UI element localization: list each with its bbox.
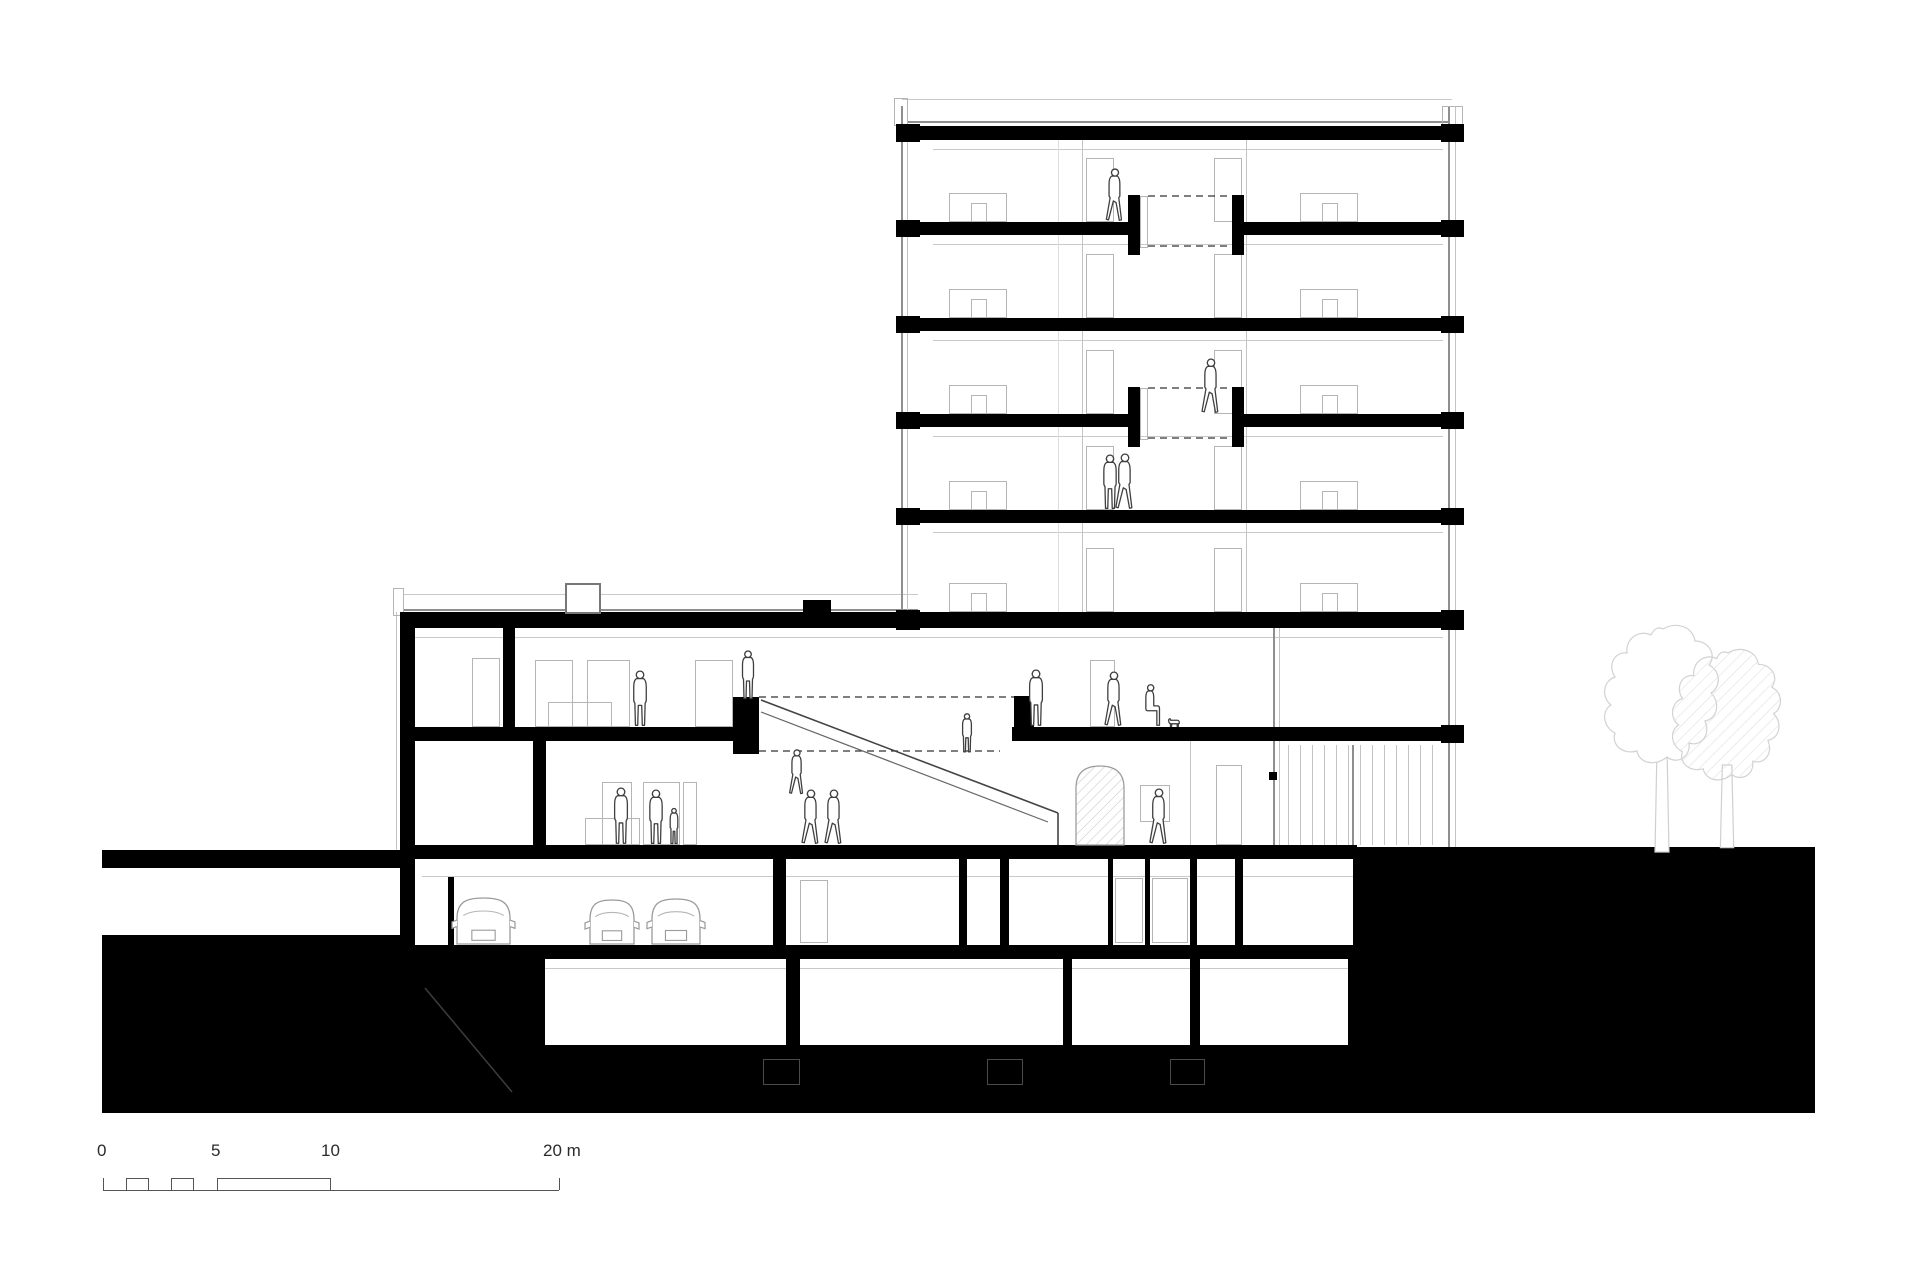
scale-label: 10: [321, 1142, 381, 1160]
figure-walk: [1202, 359, 1218, 412]
figure-seat: [1146, 685, 1160, 725]
scale-baseline: [103, 1190, 559, 1191]
figure-walk: [1106, 169, 1121, 220]
car: [647, 899, 705, 944]
figure-dog: [1169, 719, 1180, 727]
figure-walk: [1150, 789, 1166, 843]
tree-hatched: [1673, 649, 1781, 847]
scale-label: 0: [97, 1142, 157, 1160]
figure-stand: [1030, 670, 1043, 725]
car: [585, 900, 639, 944]
figure-stand: [650, 790, 662, 843]
scale-end-tick: [103, 1178, 104, 1190]
figure-stand: [743, 651, 754, 699]
scale-label: 5: [211, 1142, 271, 1160]
void-dashed-openings: [759, 196, 1232, 751]
trees: [1605, 625, 1781, 852]
hatched-stove: [1076, 766, 1124, 845]
human-figures: [615, 169, 1218, 843]
parked-cars: [452, 898, 705, 944]
figure-stand: [634, 671, 647, 725]
figure-stand: [1104, 455, 1116, 508]
scale-tooth: [171, 1178, 194, 1190]
scale-end-tick: [559, 1178, 560, 1190]
car: [452, 898, 515, 944]
figure-stand: [615, 788, 628, 843]
figure-walk: [802, 790, 818, 843]
figure-walk: [1116, 454, 1132, 508]
scale-tooth: [126, 1178, 149, 1190]
section-overlay: [0, 0, 1920, 1281]
figure-walk: [1105, 672, 1121, 725]
figure-stand: [963, 714, 972, 752]
figure-child: [670, 809, 678, 844]
ramp-line: [425, 988, 512, 1092]
architectural-section-drawing: 051020 m: [0, 0, 1920, 1281]
figure-walk: [825, 790, 841, 843]
stair-lines: [425, 700, 1058, 1092]
scale-tooth: [217, 1178, 331, 1190]
scale-label: 20 m: [543, 1142, 603, 1160]
figure-walk: [790, 750, 803, 794]
stair-stringer: [761, 700, 1058, 813]
stair-rail: [761, 712, 1048, 822]
